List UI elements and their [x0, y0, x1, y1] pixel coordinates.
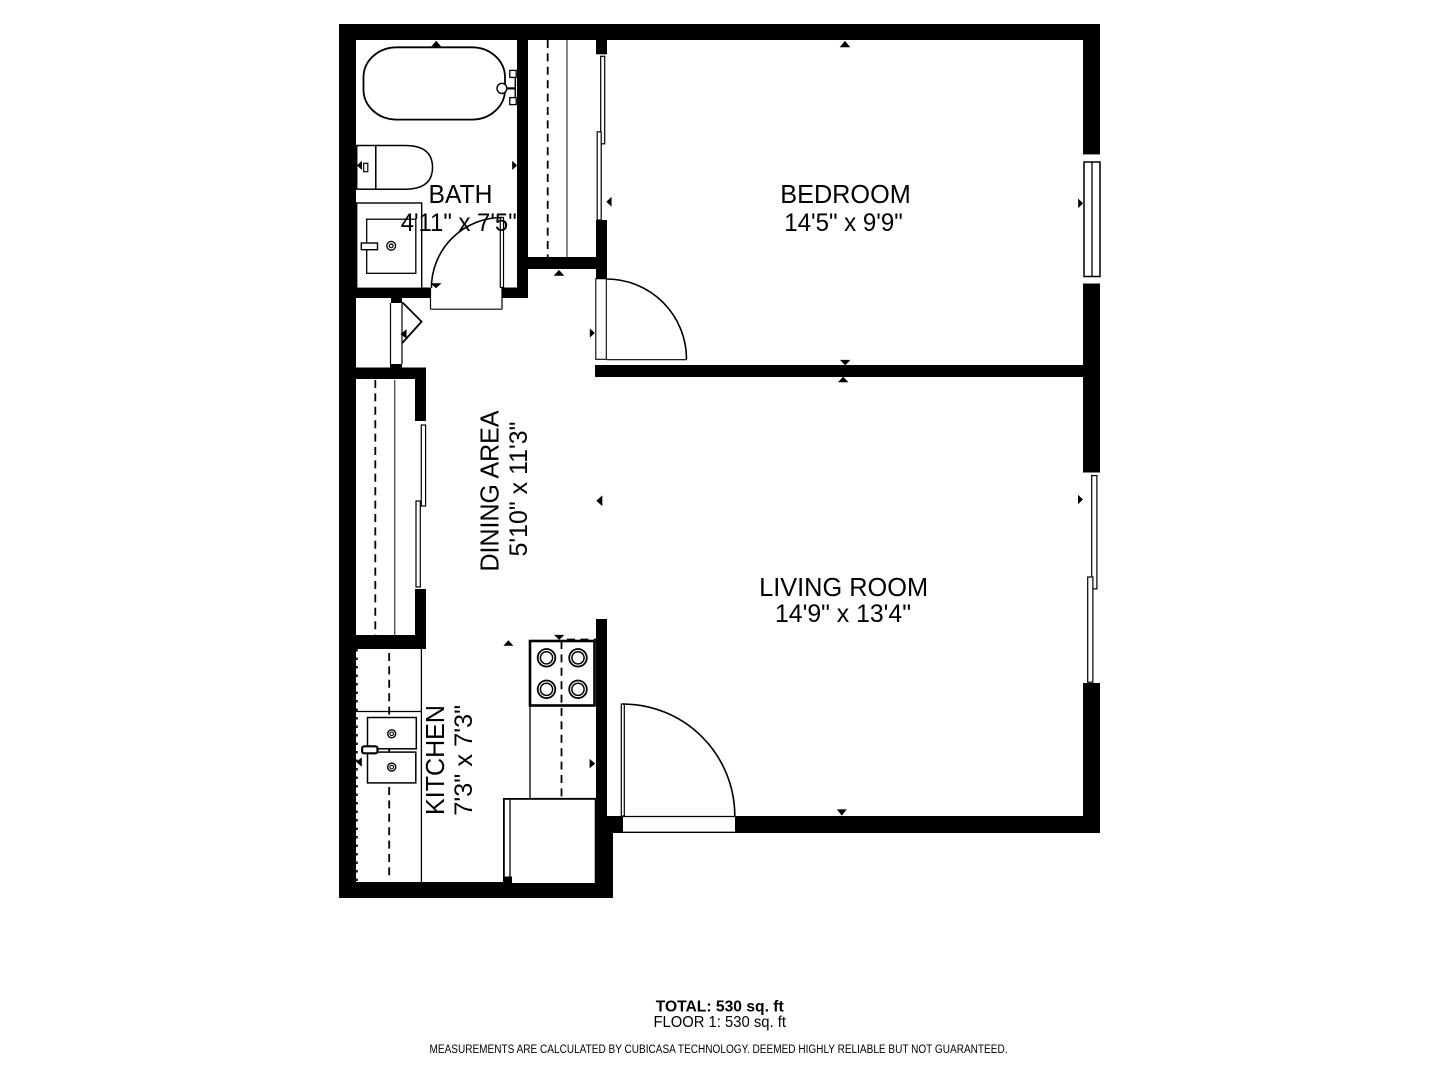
svg-text:DINING AREA: DINING AREA: [475, 410, 505, 572]
svg-text:BEDROOM: BEDROOM: [780, 179, 911, 209]
svg-text:4'11" x 7'5": 4'11" x 7'5": [401, 209, 517, 237]
svg-text:LIVING ROOM: LIVING ROOM: [759, 572, 928, 602]
svg-text:KITCHEN: KITCHEN: [420, 705, 450, 815]
svg-text:FLOOR 1: 530 sq. ft: FLOOR 1: 530 sq. ft: [653, 1014, 786, 1031]
svg-text:14'9" x 13'4": 14'9" x 13'4": [775, 600, 911, 628]
svg-text:7'3" x 7'3": 7'3" x 7'3": [450, 705, 478, 816]
svg-text:BATH: BATH: [429, 179, 493, 209]
svg-text:14'5" x 9'9": 14'5" x 9'9": [784, 209, 903, 237]
svg-text:MEASUREMENTS ARE CALCULATED BY: MEASUREMENTS ARE CALCULATED BY CUBICASA …: [430, 1044, 1008, 1056]
svg-text:TOTAL: 530 sq. ft: TOTAL: 530 sq. ft: [656, 999, 785, 1016]
svg-text:5'10" x 11'3": 5'10" x 11'3": [505, 422, 533, 557]
